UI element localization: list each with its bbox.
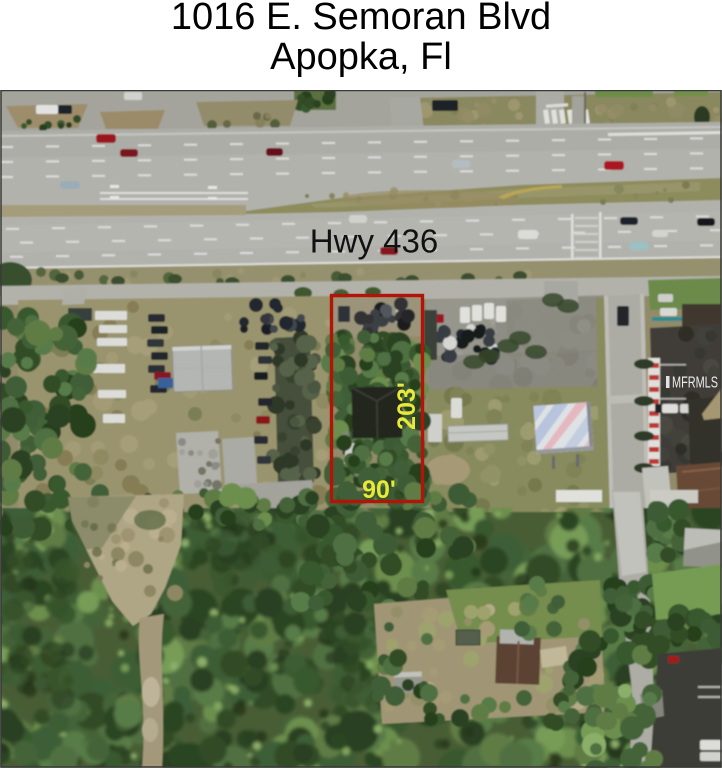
svg-text:90': 90' bbox=[362, 476, 396, 504]
svg-text:Hwy 436: Hwy 436 bbox=[310, 223, 438, 260]
svg-text:203': 203' bbox=[393, 382, 421, 430]
svg-text:MFRMLS: MFRMLS bbox=[672, 375, 718, 392]
